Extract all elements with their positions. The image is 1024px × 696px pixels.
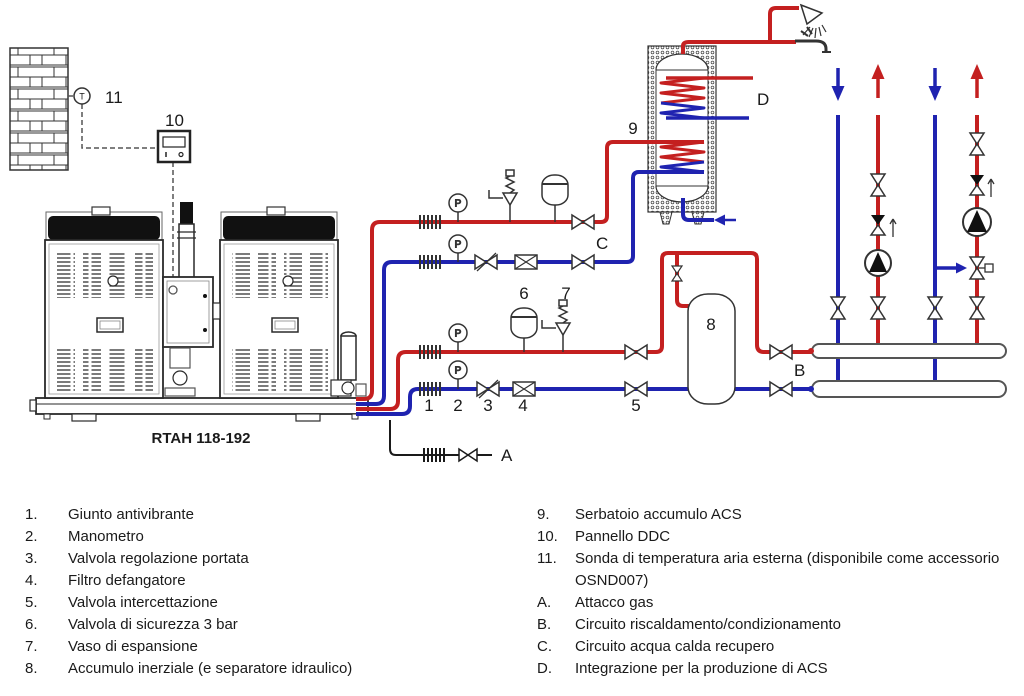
legend-item: A. Attacco gas xyxy=(537,592,1024,614)
check-valve-icon xyxy=(871,215,896,237)
three-way-valve-icon xyxy=(970,257,993,279)
legend-item: B. Circuito riscaldamento/condizionament… xyxy=(537,614,1024,636)
shower-icon xyxy=(801,5,822,24)
legend-item-number: A. xyxy=(537,592,575,614)
legend-item-number: 7. xyxy=(25,636,68,658)
legend-item-text: Attacco gas xyxy=(575,592,1020,614)
pipe-hot-heating xyxy=(356,253,818,409)
legend-item-text: Manometro xyxy=(68,526,505,548)
legend-item-text: Valvola intercettazione xyxy=(68,592,505,614)
legend-item: 4. Filtro defangatore xyxy=(25,570,505,592)
chiller-unit xyxy=(30,202,368,421)
legend-item-text: Filtro defangatore xyxy=(68,570,505,592)
unit-label: RTAH 118-192 xyxy=(152,430,251,447)
flow-down-arrow xyxy=(832,86,845,101)
tank-leg xyxy=(660,212,672,224)
valve-icon xyxy=(831,297,984,319)
safety-valve-icon xyxy=(542,300,570,352)
legend-item-number: 5. xyxy=(25,592,68,614)
gas-line xyxy=(390,420,492,462)
callout-3: 3 xyxy=(483,396,492,415)
legend-item-text: Accumulo inerziale (e separatore idrauli… xyxy=(68,658,505,680)
legend-item: 6. Valvola di sicurezza 3 bar xyxy=(25,614,505,636)
legend-item-number: 11. xyxy=(537,548,575,570)
acs-storage-tank xyxy=(648,46,716,224)
valve-icon xyxy=(871,174,885,196)
cold-inlet-arrowhead xyxy=(714,215,725,226)
buffer-stub-valve-icon xyxy=(672,266,682,281)
legend-item-number: 9. xyxy=(537,504,575,526)
callout-B: B xyxy=(794,361,805,380)
callout-9: 9 xyxy=(628,119,637,138)
legend-item-number: 3. xyxy=(25,548,68,570)
svg-text:P: P xyxy=(455,329,462,340)
legend-item: D. Integrazione per la produzione di ACS xyxy=(537,658,1024,680)
legend-right-column: 9. Serbatoio accumulo ACS 10. Pannello D… xyxy=(537,504,1024,680)
legend-item: 8. Accumulo inerziale (e separatore idra… xyxy=(25,658,505,680)
expansion-vessel-icon xyxy=(542,175,568,222)
legend-item-text: Vaso di espansione xyxy=(68,636,505,658)
cold-arrows xyxy=(714,86,967,274)
flow-up-arrow xyxy=(872,64,885,79)
legend-item-text: Serbatoio accumulo ACS xyxy=(575,504,1020,526)
callout-4: 4 xyxy=(518,396,527,415)
svg-text:P: P xyxy=(455,366,462,377)
legend-item: 9. Serbatoio accumulo ACS xyxy=(537,504,1024,526)
legend-item-text: Valvola di sicurezza 3 bar xyxy=(68,614,505,636)
safety-valve-icon xyxy=(489,170,517,222)
pump-icon xyxy=(963,208,991,236)
legend-item-number: B. xyxy=(537,614,575,636)
legend-left-column: 1. Giunto antivibrante 2. Manometro 3. V… xyxy=(25,504,505,680)
svg-text:P: P xyxy=(455,199,462,210)
page: T xyxy=(0,0,1024,696)
check-valve-icon xyxy=(970,175,994,197)
gas-valve-icon xyxy=(459,449,477,461)
mixing-branch-arrowhead xyxy=(956,263,967,274)
legend-item-text: Circuito riscaldamento/condizionamento xyxy=(575,614,1020,636)
legend-item-text: Sonda di temperatura aria esterna (dispo… xyxy=(575,548,1020,592)
return-header xyxy=(812,381,1006,397)
legend-item: 7. Vaso di espansione xyxy=(25,636,505,658)
outdoor-wall xyxy=(10,48,68,170)
legend-item-text: Pannello DDC xyxy=(575,526,1020,548)
expansion-vessel-icon xyxy=(511,308,537,352)
callout-C: C xyxy=(596,234,608,253)
buffer-tank xyxy=(688,294,735,404)
flow-up-arrow xyxy=(971,64,984,79)
control-line-terminal xyxy=(169,286,177,294)
callout-7: 7 xyxy=(561,284,570,303)
callout-D: D xyxy=(757,90,769,109)
valve-icon xyxy=(970,133,984,155)
legend-item-number: 8. xyxy=(25,658,68,680)
callout-5: 5 xyxy=(631,396,640,415)
legend-item-text: Circuito acqua calda recupero xyxy=(575,636,1020,658)
legend-item-number: 2. xyxy=(25,526,68,548)
legend-item: 10. Pannello DDC xyxy=(537,526,1024,548)
callout-11: 11 xyxy=(105,88,123,107)
legend-item-number: 4. xyxy=(25,570,68,592)
legend-item: 2. Manometro xyxy=(25,526,505,548)
legend-item-number: D. xyxy=(537,658,575,680)
riser-components xyxy=(831,133,994,319)
pump-icon xyxy=(865,250,891,276)
supply-header xyxy=(812,344,1006,358)
callout-10: 10 xyxy=(165,111,184,130)
outdoor-temp-sensor: T xyxy=(74,88,90,104)
callout-8: 8 xyxy=(706,315,715,334)
dhw-fixtures xyxy=(795,5,831,52)
hydraulic-schematic: T xyxy=(0,0,1024,496)
legend-item-number: 6. xyxy=(25,614,68,636)
legend-item: 1. Giunto antivibrante xyxy=(25,504,505,526)
svg-text:P: P xyxy=(455,240,462,251)
flow-down-arrow xyxy=(929,86,942,101)
callout-A: A xyxy=(501,446,513,465)
legend-item-number: 10. xyxy=(537,526,575,548)
hot-arrows xyxy=(872,64,984,79)
callout-2: 2 xyxy=(453,396,462,415)
legend-item-number: C. xyxy=(537,636,575,658)
callout-6: 6 xyxy=(519,284,528,303)
ddc-panel xyxy=(158,131,190,162)
svg-text:T: T xyxy=(79,92,85,102)
legend-item: 3. Valvola regolazione portata xyxy=(25,548,505,570)
legend-item-text: Giunto antivibrante xyxy=(68,504,505,526)
callout-1: 1 xyxy=(424,396,433,415)
legend-item-text: Integrazione per la produzione di ACS xyxy=(575,658,1020,680)
legend-item: 5. Valvola intercettazione xyxy=(25,592,505,614)
legend-item: C. Circuito acqua calda recupero xyxy=(537,636,1024,658)
legend-item-text: Valvola regolazione portata xyxy=(68,548,505,570)
legend-item: 11. Sonda di temperatura aria esterna (d… xyxy=(537,548,1024,592)
legend-item-number: 1. xyxy=(25,504,68,526)
flex-joint-icon xyxy=(420,215,440,396)
